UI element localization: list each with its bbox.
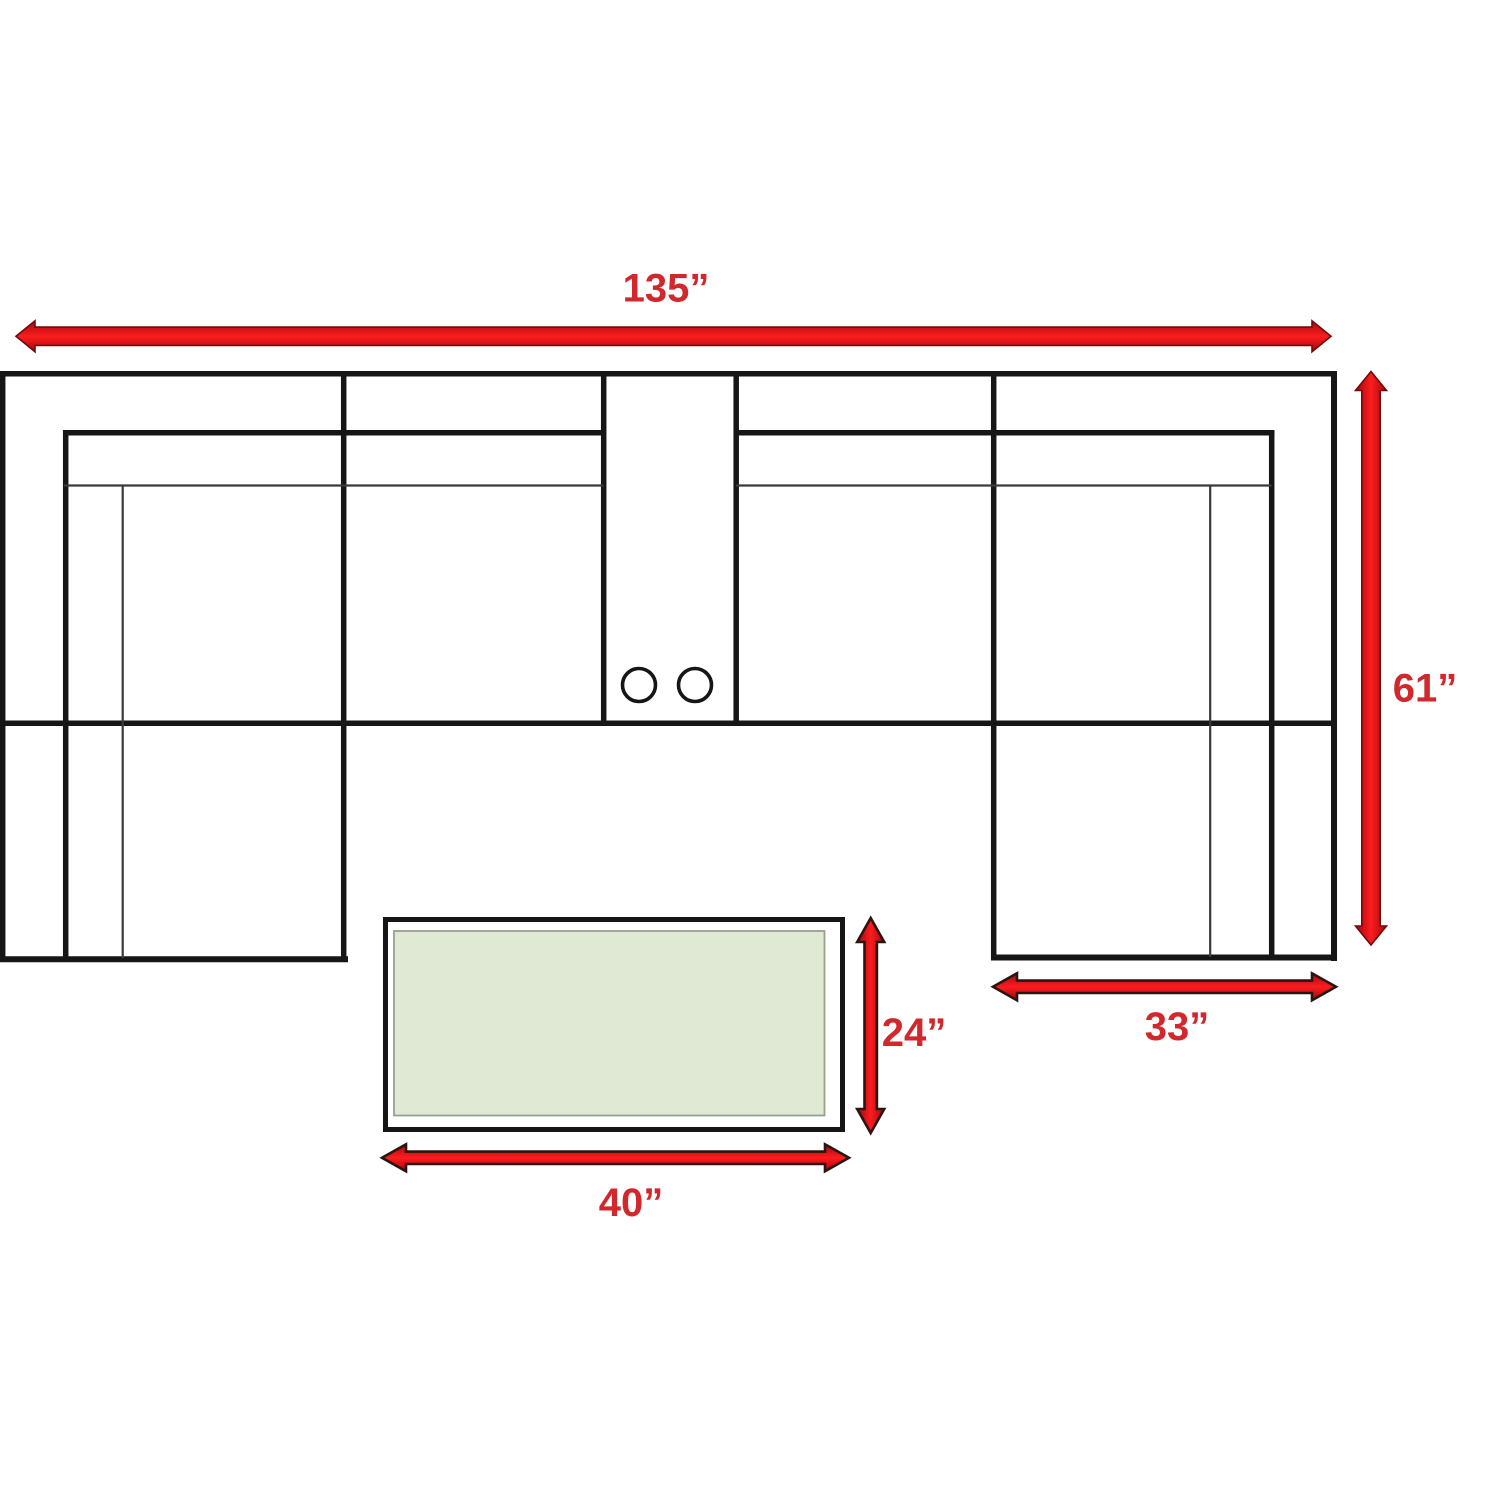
svg-text:40”: 40” <box>599 1181 664 1225</box>
svg-text:61”: 61” <box>1393 667 1458 711</box>
svg-text:24”: 24” <box>882 1011 947 1055</box>
svg-text:33”: 33” <box>1145 1005 1210 1049</box>
svg-text:135”: 135” <box>623 267 710 311</box>
